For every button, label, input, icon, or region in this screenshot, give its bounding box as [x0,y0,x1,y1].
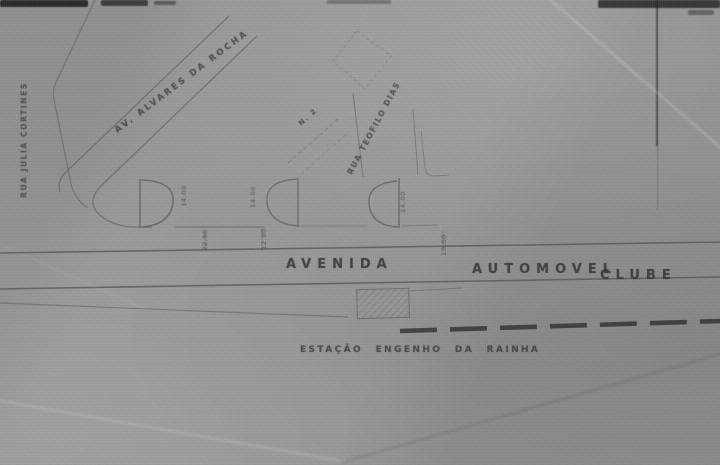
parcel-dash-2 [301,132,349,174]
middle-street-corner [421,131,449,176]
lot-diamond [333,31,391,89]
avenue-north-line [0,242,720,253]
corner-arc-c [369,178,399,228]
south-sidewalk-line [0,303,348,317]
label-left-street: RUA JULIA CORTINES [20,82,29,198]
railway-dashed-line [400,321,720,331]
edge-smudge-1 [0,0,88,7]
right-scan-line [656,0,658,146]
dim-label-6: 10.00 [440,234,448,256]
corner-arc-a [140,179,173,228]
south-stub-line [410,288,462,291]
dim-label-2: 14.00 [249,186,257,208]
dim-label-5: 12.00 [260,228,268,250]
label-avenida: AVENIDA [286,257,393,272]
edge-smudge-5 [598,0,720,8]
edge-smudge-3 [154,1,176,5]
edge-smudge-6 [688,10,714,15]
dim-label-4: 22.00 [201,229,209,251]
plan-linework [0,0,720,465]
dim-label-1: 14.00 [180,185,188,207]
corner-arc-b [267,178,299,227]
right-scan-line-faint [657,140,658,210]
edge-smudge-4 [327,0,391,4]
dim-label-3: 14.00 [399,191,407,213]
scanned-street-plan: { "meta": { "description": "Scanned engi… [0,0,720,465]
hatched-platform [357,288,410,318]
sidewalk-segment-3 [402,225,437,226]
label-station: ESTAÇÃO ENGENHO DA RAINHA [300,345,540,355]
left-street-edge [53,0,95,208]
label-automovel: AUTOMOVEL [472,262,617,277]
edge-smudge-2 [101,0,148,6]
parcel-dash-1 [288,119,338,163]
middle-street-east-edge [413,109,418,175]
label-clube: CLUBE [600,268,677,283]
